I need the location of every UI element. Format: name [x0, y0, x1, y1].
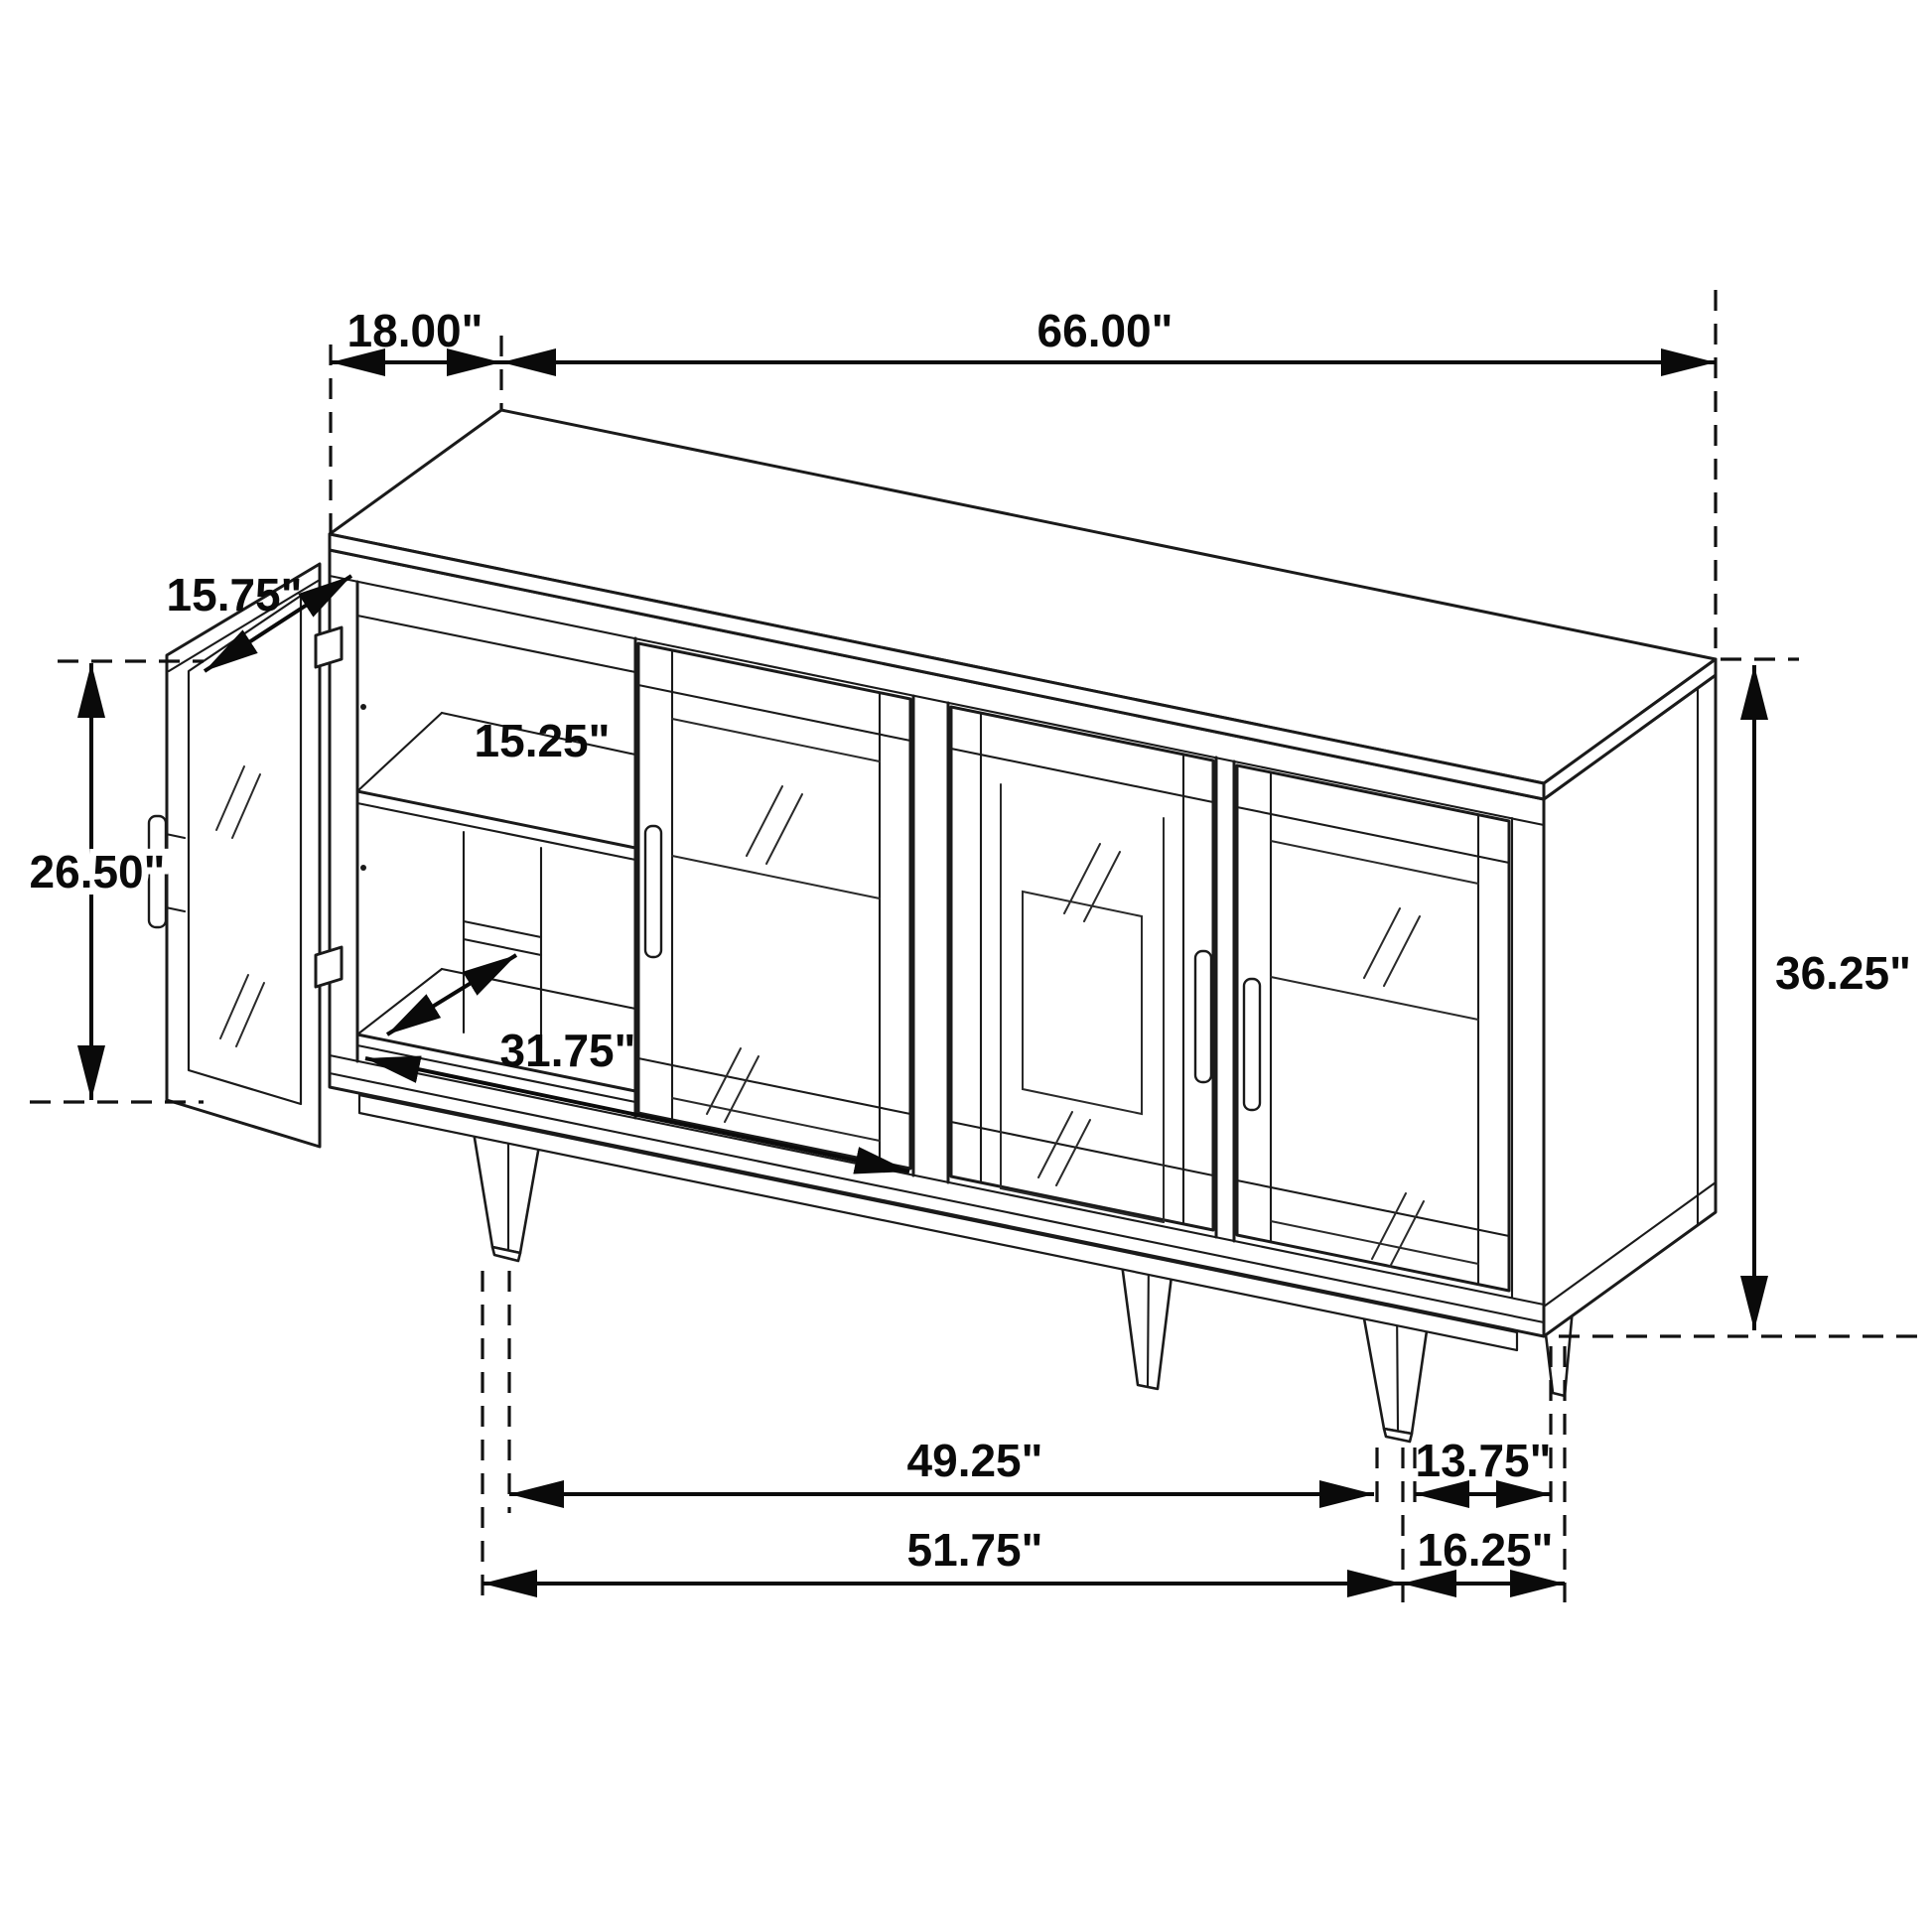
dim-label-shelf-width: 15.25" [475, 715, 611, 766]
dim-front-span-outer: 51.75" [483, 1524, 1402, 1584]
dim-top-depth: 18.00" [331, 305, 501, 362]
sideboard-dimension-drawing: 18.00" 66.00" 15.75" 26.50" 15.25" 31.75… [0, 0, 1932, 1932]
dim-label-top-depth: 18.00" [347, 305, 483, 356]
dim-overall-width: 66.00" [501, 305, 1716, 362]
dim-label-door-width: 15.75" [167, 569, 303, 621]
dim-label-side-span-inner: 13.75" [1416, 1435, 1552, 1486]
dim-side-span-inner: 13.75" [1415, 1435, 1551, 1494]
dimension-diagram: 18.00" 66.00" 15.75" 26.50" 15.25" 31.75… [0, 0, 1932, 1932]
dim-label-overall-height: 36.25" [1775, 947, 1911, 999]
dim-front-span-inner: 49.25" [509, 1435, 1374, 1494]
dim-label-front-span-inner: 49.25" [907, 1435, 1043, 1486]
door-hinge-bottom [316, 947, 342, 987]
dim-label-overall-width: 66.00" [1037, 305, 1173, 356]
dim-side-span-outer: 16.25" [1402, 1524, 1565, 1584]
dim-label-door-height: 26.50" [30, 846, 166, 897]
shelf-pin-hole [360, 704, 366, 710]
cabinet-drawing [149, 410, 1716, 1442]
open-glass-door [149, 564, 342, 1147]
dim-label-front-span-outer: 51.75" [907, 1524, 1043, 1576]
door-2-handle [645, 826, 661, 957]
door-4-handle [1244, 979, 1260, 1110]
shelf-pin-hole [360, 865, 366, 871]
dim-label-interior-width: 31.75" [500, 1025, 636, 1076]
door-hinge-top [316, 627, 342, 667]
dim-label-side-span-outer: 16.25" [1418, 1524, 1554, 1576]
door-3-handle [1195, 951, 1211, 1082]
